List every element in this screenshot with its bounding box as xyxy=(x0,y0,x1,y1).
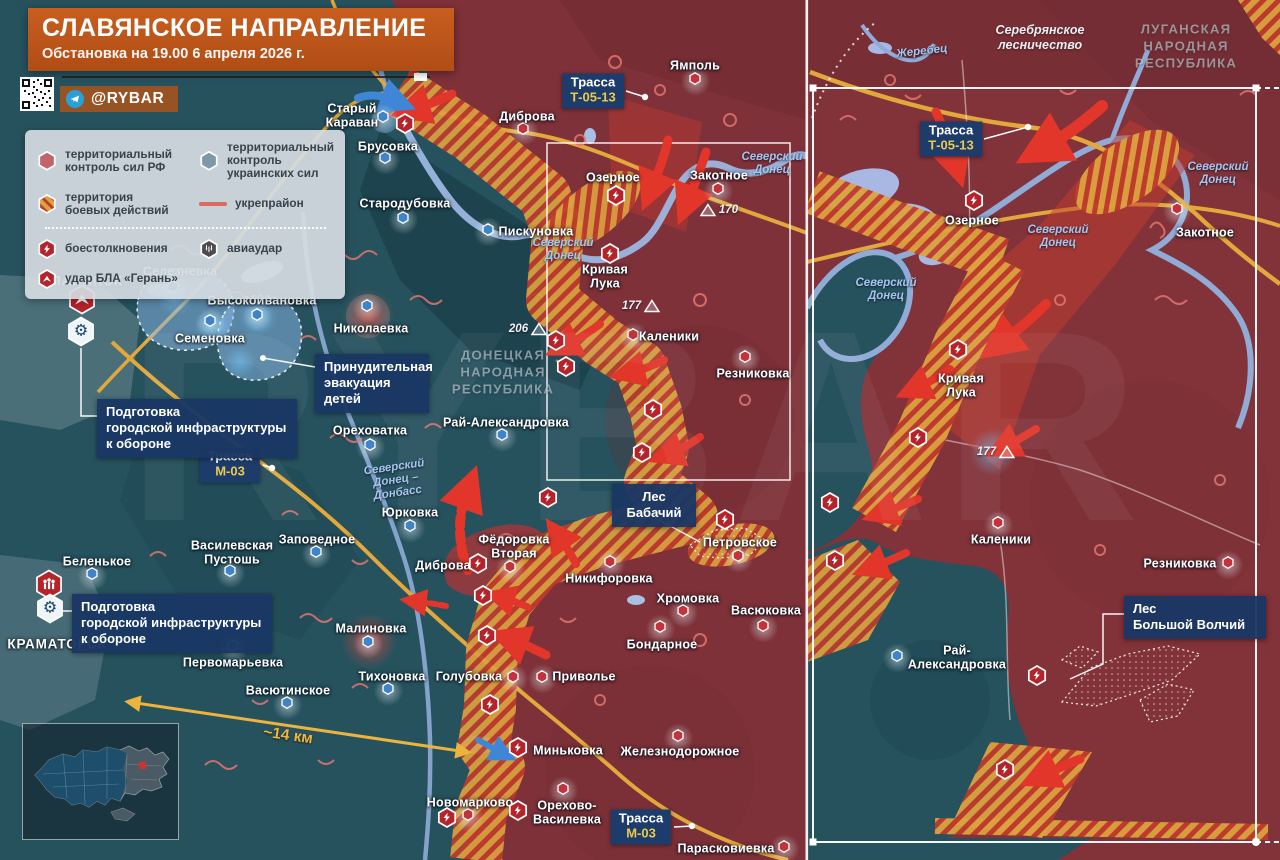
drone-icon xyxy=(37,269,57,289)
city-label: Озерное xyxy=(586,171,640,185)
height-marker: 177 xyxy=(622,299,660,313)
road-number: М-03 xyxy=(619,827,663,842)
city-marker xyxy=(1171,202,1184,220)
city-label: Резниковка xyxy=(1143,557,1216,571)
clash-icon xyxy=(908,427,929,453)
river-label: Северский Донец – Донбасс xyxy=(363,457,429,505)
legend-item-label: территориальный контроль украинских сил xyxy=(227,141,334,181)
city-label: Беленькое xyxy=(63,555,131,569)
city-marker xyxy=(504,560,517,578)
city-marker xyxy=(251,308,264,326)
legend-item: боестолкновения xyxy=(37,239,193,259)
city-label: Приволье xyxy=(552,670,615,684)
clash-icon xyxy=(508,800,529,826)
legend-item-label: укрепрайон xyxy=(235,197,304,210)
channel-handle: @RYBAR xyxy=(91,90,164,108)
road-label: ТрассаТ-05-13 xyxy=(562,74,624,109)
city-marker xyxy=(507,670,520,688)
clash-icon xyxy=(964,190,985,216)
city-label: Орехово- Василевка xyxy=(533,800,601,827)
legend-panel: территориальный контроль сил РФтерритори… xyxy=(25,130,345,299)
river-label: Северский Донец xyxy=(532,237,593,263)
title-banner: СЛАВЯНСКОЕ НАПРАВЛЕНИЕ Обстановка на 19.… xyxy=(28,8,454,71)
legend-item: территориальный контроль украинских сил xyxy=(199,141,334,181)
legend-item: территориальный контроль сил РФ xyxy=(37,148,193,174)
city-marker xyxy=(654,620,667,638)
city-marker xyxy=(557,782,570,800)
city-label: Закотное xyxy=(1176,226,1234,240)
city-marker xyxy=(310,545,323,563)
clash-icon xyxy=(995,759,1016,785)
legend-item-label: авиаудар xyxy=(227,242,282,255)
city-label: Заповедное xyxy=(279,533,356,547)
fortline-icon xyxy=(199,202,227,206)
city-label: Юрковка xyxy=(382,506,439,520)
city-label: Николаевка xyxy=(334,322,409,336)
city-marker xyxy=(204,314,217,332)
labels-layer: Старый КараванБрусовкаСтародубовкаПискун… xyxy=(0,0,1280,860)
height-value: 170 xyxy=(719,204,738,216)
minimap xyxy=(22,723,179,840)
city-label: Хромовка xyxy=(657,592,720,606)
city-marker xyxy=(382,682,395,700)
clash-icon xyxy=(477,625,498,651)
city-marker xyxy=(627,328,640,346)
river-label: Северский Донец xyxy=(1187,161,1248,187)
city-marker xyxy=(496,428,509,446)
height-marker: 177 xyxy=(977,445,1015,459)
city-marker xyxy=(677,604,690,622)
channel-bar: @RYBAR xyxy=(60,86,178,112)
height-marker: 206 xyxy=(509,322,547,336)
city-marker xyxy=(689,72,702,90)
city-marker xyxy=(891,649,904,667)
city-label: Малиновка xyxy=(335,622,406,636)
city-label: Васюковка xyxy=(731,604,801,618)
page-subtitle: Обстановка на 19.00 6 апреля 2026 г. xyxy=(42,46,440,62)
callout: Принудительная эвакуация детей xyxy=(315,354,429,413)
city-marker xyxy=(361,299,374,317)
clash-icon xyxy=(538,487,559,513)
road-name: Трасса xyxy=(570,76,616,91)
city-marker xyxy=(536,670,549,688)
city-marker xyxy=(397,211,410,229)
city-label: Первомарьевка xyxy=(183,656,283,670)
clash-icon xyxy=(480,694,501,720)
city-label: Миньковка xyxy=(533,744,603,758)
city-label: Ямполь xyxy=(670,59,720,73)
callout: Подготовка городской инфраструктуры к об… xyxy=(97,399,297,458)
callout: Лес Бабачий xyxy=(612,484,696,527)
legend-item: территория боевых действий xyxy=(37,191,193,217)
clash-icon xyxy=(948,339,969,365)
city-label: Диброва xyxy=(499,110,554,124)
city-label: Семеновка xyxy=(175,332,245,346)
forest-note-label: Серебрянское лесничество xyxy=(996,23,1085,53)
city-marker xyxy=(1222,556,1235,574)
road-number: Т-05-13 xyxy=(570,91,616,106)
city-label: Каленики xyxy=(639,330,699,344)
map-canvas: RYBAR Старый КараванБрусовкаСтародубовка… xyxy=(0,0,1280,860)
city-label: Фёдоровка Вторая xyxy=(478,534,549,561)
legend-item-label: удар БЛА «Герань» xyxy=(65,272,178,285)
city-label: Рай- Александровка xyxy=(908,645,1006,672)
road-number: Т-05-13 xyxy=(928,139,974,154)
region-label: ЛУГАНСКАЯ НАРОДНАЯ РЕСПУБЛИКА xyxy=(1135,20,1237,71)
qr-code xyxy=(20,77,54,111)
city-marker xyxy=(364,438,377,456)
city-marker xyxy=(778,840,791,858)
road-label: ТрассаМ-03 xyxy=(611,810,671,845)
clash-icon xyxy=(1027,665,1048,691)
gear-icon: ⚙ xyxy=(35,594,65,629)
city-label: Рай-Александровка xyxy=(443,416,569,430)
clash-icon xyxy=(468,553,489,579)
city-label: Василевская Пустошь xyxy=(191,540,273,567)
city-label: Голубовка xyxy=(436,670,503,684)
height-value: 177 xyxy=(622,300,641,312)
city-label: Резниковка xyxy=(716,367,789,381)
legend-divider xyxy=(45,227,326,229)
river-label: Северский Донец xyxy=(741,151,802,177)
road-label: ТрассаТ-05-13 xyxy=(920,122,982,157)
callout: Подготовка городской инфраструктуры к об… xyxy=(72,594,272,653)
clash-icon xyxy=(473,585,494,611)
page-title: СЛАВЯНСКОЕ НАПРАВЛЕНИЕ xyxy=(42,15,440,43)
airstrike-icon xyxy=(199,239,219,259)
clash-icon xyxy=(825,550,846,576)
callout: Лес Большой Волчий xyxy=(1124,596,1266,639)
hex-red-icon xyxy=(37,151,57,171)
city-label: Железнодорожное xyxy=(621,745,740,759)
city-label: Закотное xyxy=(690,169,748,183)
city-marker xyxy=(224,564,237,582)
clash-icon xyxy=(820,492,841,518)
hex-blue-icon xyxy=(199,151,219,171)
river-label: Северский Донец xyxy=(855,277,916,303)
city-marker xyxy=(732,549,745,567)
city-label: Бондарное xyxy=(627,638,698,652)
clash-icon xyxy=(556,356,577,382)
city-marker xyxy=(86,567,99,585)
clash-icon xyxy=(37,239,57,259)
clash-icon xyxy=(600,243,621,269)
city-marker xyxy=(404,519,417,537)
city-label: Тихоновка xyxy=(359,670,426,684)
city-label: Стародубовка xyxy=(360,197,451,211)
clash-icon xyxy=(606,185,627,211)
city-marker xyxy=(757,619,770,637)
legend-item: удар БЛА «Герань» xyxy=(37,269,193,289)
road-name: Трасса xyxy=(928,124,974,139)
clash-icon xyxy=(632,442,653,468)
city-label: Парасковиевка xyxy=(677,842,774,856)
hex-striped-icon xyxy=(37,194,57,214)
minimap-marker xyxy=(139,762,146,769)
legend-item-label: территориальный контроль сил РФ xyxy=(65,148,172,174)
height-marker: 170 xyxy=(700,203,738,217)
city-marker xyxy=(482,223,495,241)
city-label: Никифоровка xyxy=(565,572,652,586)
city-marker xyxy=(281,696,294,714)
clash-icon xyxy=(715,509,736,535)
city-label: Васютинское xyxy=(246,684,330,698)
legend-item: авиаудар xyxy=(199,239,334,259)
city-label: Петровское xyxy=(703,536,777,550)
city-label: Каленики xyxy=(971,533,1031,547)
clash-icon xyxy=(437,807,458,833)
legend-item-label: боестолкновения xyxy=(65,242,168,255)
river-label: Жеребец xyxy=(896,43,949,62)
telegram-icon xyxy=(66,90,84,108)
clash-icon xyxy=(643,399,664,425)
line-red-icon xyxy=(199,202,227,206)
city-label: Ореховатка xyxy=(333,424,407,438)
road-number: М-03 xyxy=(208,465,252,480)
city-label: Брусовка xyxy=(358,140,418,154)
height-value: 177 xyxy=(977,446,996,458)
clash-icon xyxy=(508,737,529,763)
city-label: Диброва xyxy=(415,559,470,573)
city-label: Кривая Лука xyxy=(938,373,984,400)
legend-item-label: территория боевых действий xyxy=(65,191,169,217)
height-value: 206 xyxy=(509,323,528,335)
city-marker xyxy=(517,122,530,140)
city-label: Озерное xyxy=(945,214,999,228)
city-marker xyxy=(712,182,725,200)
region-label: ДОНЕЦКАЯ НАРОДНАЯ РЕСПУБЛИКА xyxy=(452,346,554,397)
city-label: Старый Караван xyxy=(326,103,379,130)
road-name: Трасса xyxy=(619,812,663,827)
city-marker xyxy=(362,635,375,653)
gear-icon: ⚙ xyxy=(66,317,96,352)
clash-icon xyxy=(395,113,416,139)
distance-label: ~14 км xyxy=(262,724,314,749)
city-marker xyxy=(462,808,475,826)
river-label: Северский Донец xyxy=(1027,224,1088,250)
legend-item: укрепрайон xyxy=(199,197,334,210)
